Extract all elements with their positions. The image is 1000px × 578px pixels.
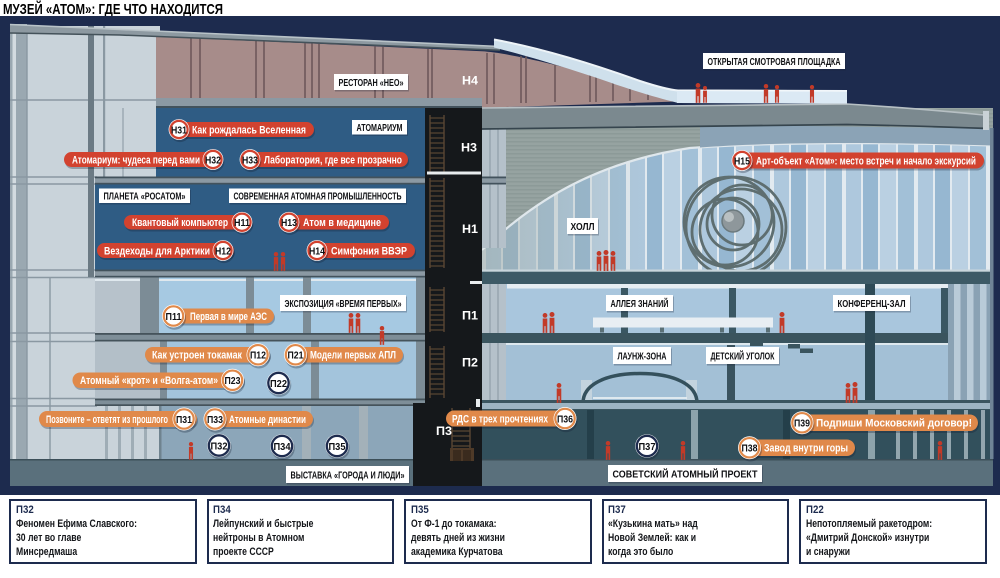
svg-text:П1: П1 [462, 311, 479, 323]
svg-text:Как устроен токамак: Как устроен токамак [152, 350, 242, 362]
svg-text:Н32: Н32 [205, 154, 221, 166]
svg-text:Атомный «крот» и «Волга-атом»: Атомный «крот» и «Волга-атом» [80, 375, 218, 387]
svg-text:П34: П34 [274, 441, 291, 453]
svg-text:МУЗЕЙ «АТОМ»: ГДЕ ЧТО НАХОДИТС: МУЗЕЙ «АТОМ»: ГДЕ ЧТО НАХОДИТСЯ [3, 0, 223, 18]
svg-text:Н12: Н12 [215, 245, 231, 257]
svg-text:Атом в медицине: Атом в медицине [303, 217, 381, 229]
svg-text:АЛЛЕЯ ЗНАНИЙ: АЛЛЕЯ ЗНАНИЙ [611, 297, 669, 310]
svg-text:П3: П3 [436, 426, 452, 438]
svg-text:Первая в мире АЭС: Первая в мире АЭС [190, 311, 267, 323]
svg-text:АТОМАРИУМ: АТОМАРИУМ [357, 123, 403, 134]
svg-text:Вездеходы для Арктики: Вездеходы для Арктики [104, 245, 210, 257]
svg-text:СОВРЕМЕННАЯ АТОМНАЯ ПРОМЫШЛЕНН: СОВРЕМЕННАЯ АТОМНАЯ ПРОМЫШЛЕННОСТЬ [234, 192, 402, 203]
svg-text:Симфония ВВЭР: Симфония ВВЭР [331, 245, 407, 257]
svg-text:П12: П12 [250, 350, 266, 362]
svg-text:П31: П31 [176, 414, 192, 426]
svg-text:П2: П2 [462, 358, 478, 370]
svg-text:Квантовый компьютер: Квантовый компьютер [132, 217, 228, 229]
svg-text:РЕСТОРАН «НЕО»: РЕСТОРАН «НЕО» [339, 77, 404, 89]
svg-text:Н3: Н3 [461, 143, 477, 155]
svg-text:Арт-объект «Атом»: место встре: Арт-объект «Атом»: место встреч и начало… [756, 155, 976, 167]
svg-text:Атомариум: чудеса перед вами: Атомариум: чудеса перед вами [72, 154, 200, 166]
svg-text:ЛАУНЖ-ЗОНА: ЛАУНЖ-ЗОНА [618, 351, 667, 362]
svg-text:П22: П22 [270, 378, 287, 390]
svg-text:П11: П11 [166, 311, 182, 323]
svg-text:ХОЛЛ: ХОЛЛ [571, 221, 595, 233]
svg-text:Н1: Н1 [462, 224, 479, 236]
svg-text:Как рождалась Вселенная: Как рождалась Вселенная [192, 124, 306, 136]
svg-text:СОВЕТСКИЙ АТОМНЫЙ ПРОЕКТ: СОВЕТСКИЙ АТОМНЫЙ ПРОЕКТ [613, 467, 758, 480]
svg-text:ВЫСТАВКА «ГОРОДА И ЛЮДИ»: ВЫСТАВКА «ГОРОДА И ЛЮДИ» [291, 470, 405, 481]
svg-text:ОТКРЫТАЯ СМОТРОВАЯ ПЛОЩАДКА: ОТКРЫТАЯ СМОТРОВАЯ ПЛОЩАДКА [708, 57, 841, 68]
svg-text:Позвоните – ответят из прошлог: Позвоните – ответят из прошлого [46, 414, 168, 426]
svg-text:П37: П37 [639, 441, 656, 453]
svg-text:П23: П23 [225, 375, 241, 387]
svg-text:Н13: Н13 [281, 217, 297, 229]
svg-text:Н14: Н14 [309, 245, 325, 257]
svg-text:Н11: Н11 [234, 217, 250, 229]
svg-text:КОНФЕРЕНЦ-ЗАЛ: КОНФЕРЕНЦ-ЗАЛ [838, 299, 906, 310]
svg-text:Н15: Н15 [734, 155, 750, 167]
svg-text:П21: П21 [288, 350, 304, 362]
svg-text:ПЛАНЕТА «РОСАТОМ»: ПЛАНЕТА «РОСАТОМ» [104, 192, 186, 203]
svg-text:ДЕТСКИЙ УГОЛОК: ДЕТСКИЙ УГОЛОК [711, 349, 776, 362]
svg-text:П38: П38 [742, 443, 758, 455]
svg-text:Завод внутри горы: Завод внутри горы [764, 443, 848, 455]
svg-text:ЭКСПОЗИЦИЯ «ВРЕМЯ ПЕРВЫХ»: ЭКСПОЗИЦИЯ «ВРЕМЯ ПЕРВЫХ» [285, 299, 402, 310]
svg-text:Лаборатория, где все прозрачно: Лаборатория, где все прозрачно [264, 154, 402, 166]
svg-text:Н31: Н31 [171, 124, 187, 136]
svg-text:П39: П39 [794, 418, 810, 430]
svg-text:П33: П33 [207, 414, 223, 426]
svg-text:Н33: Н33 [242, 154, 258, 166]
svg-text:П32: П32 [211, 440, 228, 452]
svg-text:Подпиши Московский договор!: Подпиши Московский договор! [816, 418, 972, 430]
svg-text:Модели первых АПЛ: Модели первых АПЛ [310, 350, 396, 362]
svg-text:РДС в трех прочтениях: РДС в трех прочтениях [452, 413, 549, 425]
svg-text:Атомные династии: Атомные династии [229, 414, 306, 426]
svg-text:Н4: Н4 [462, 76, 479, 88]
svg-text:П35: П35 [329, 441, 346, 453]
svg-text:П36: П36 [557, 413, 573, 425]
